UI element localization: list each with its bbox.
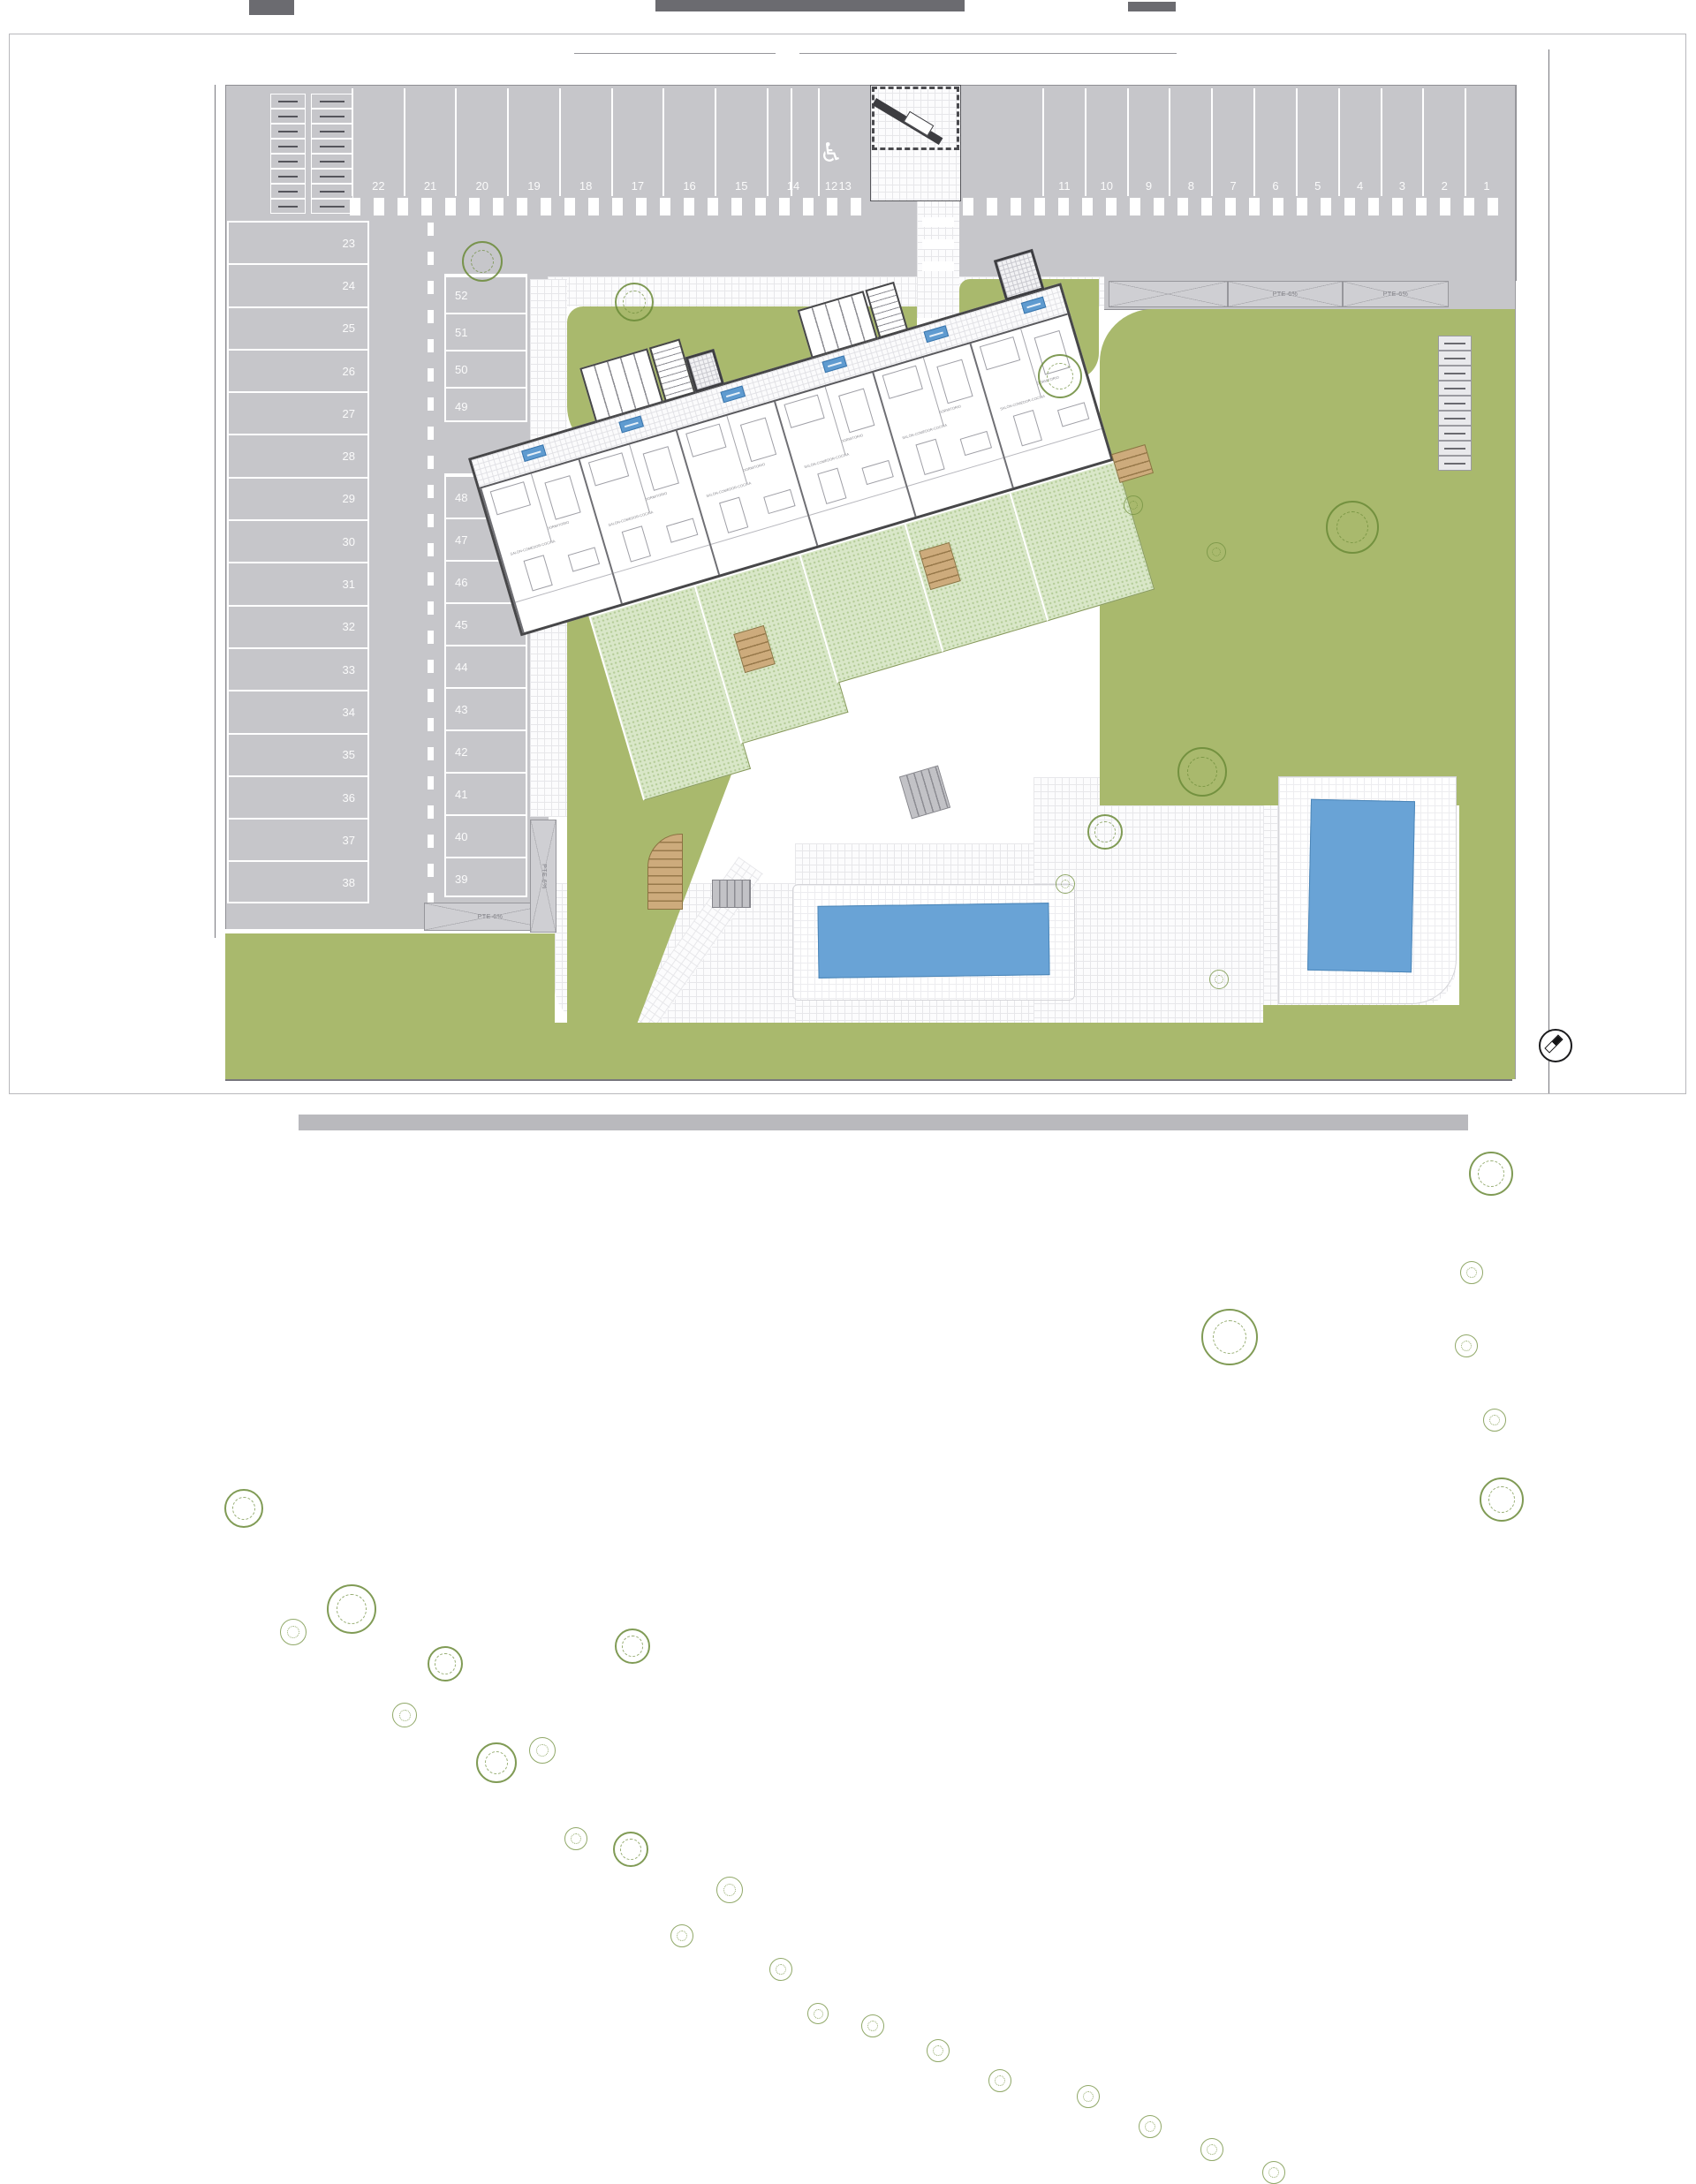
green-band-bottom: [555, 1023, 1263, 1079]
parking-space: 7: [1211, 88, 1253, 196]
parking-space-handicap: ♿ 12: [791, 88, 870, 196]
bike-rack-stalls: [311, 94, 353, 214]
shrub: [392, 1703, 417, 1727]
parking-column-left: 23242526272829303132333435363738: [227, 221, 369, 903]
parking-space: 4: [1338, 88, 1381, 196]
parking-space: 20: [455, 88, 507, 196]
parking-space: 19: [507, 88, 559, 196]
shrub: [670, 1924, 693, 1947]
parking-space: 6: [1253, 88, 1296, 196]
room-label-bedroom: DORMITORIO: [742, 462, 765, 472]
ramp-slope-label: PTE 6%: [1273, 291, 1298, 298]
bike-stall: [1438, 411, 1472, 426]
tree: [428, 1646, 463, 1681]
parking-space: 26: [229, 349, 367, 391]
shrub: [1483, 1409, 1506, 1432]
garage-ramp: PTE 6%: [1228, 281, 1343, 307]
green-band-bottom-right: [1263, 1005, 1459, 1079]
tree: [462, 241, 503, 282]
shrub: [807, 2003, 829, 2024]
dining-table: [915, 439, 944, 475]
bike-stall: [1438, 396, 1472, 411]
bike-stall: [311, 109, 353, 124]
site-plan-page: 22212019181716151413 ♿ 12 1110987654321 …: [0, 0, 1696, 1130]
tree: [615, 283, 654, 321]
parking-space: 38: [229, 860, 367, 903]
shrub: [769, 1958, 792, 1981]
scan-artifact-bar: [299, 1115, 1468, 1130]
bike-rack-stalls: [270, 94, 306, 214]
unit-number-badge: [1021, 297, 1047, 314]
parking-space: 51: [446, 313, 526, 350]
parking-space: 10: [1085, 88, 1127, 196]
parking-space: 28: [229, 434, 367, 476]
dining-table: [817, 468, 846, 504]
tree: [1038, 354, 1082, 398]
parking-space: 5: [1296, 88, 1338, 196]
bike-stall: [311, 139, 353, 154]
site-boundary-bottom: [225, 1079, 1512, 1081]
bike-stall: [1438, 381, 1472, 396]
tree: [615, 1629, 650, 1664]
ramp-slope-label: PTE 6%: [541, 864, 547, 889]
shrub: [280, 1619, 307, 1645]
bike-stall: [1438, 441, 1472, 456]
tree: [224, 1489, 263, 1528]
shrub: [1455, 1334, 1478, 1357]
bike-stall: [1438, 426, 1472, 441]
shrub: [1077, 2085, 1100, 2108]
compass-needle: [1544, 1034, 1563, 1053]
parking-space: 9: [1127, 88, 1170, 196]
bike-stall: [311, 94, 353, 109]
tree: [1201, 1309, 1258, 1365]
parking-space: 31: [229, 562, 367, 604]
bathroom: [685, 423, 726, 457]
sofa: [1057, 402, 1089, 427]
sofa: [666, 518, 698, 543]
parking-space: 8: [1169, 88, 1211, 196]
shrub: [1124, 495, 1143, 515]
bed: [740, 417, 776, 462]
tree: [327, 1584, 376, 1634]
dining-table: [719, 496, 748, 533]
north-arrow-compass: [1539, 1029, 1572, 1062]
parking-space: 34: [229, 690, 367, 732]
site-boundary-right: [1548, 49, 1549, 1093]
parking-space: 16: [662, 88, 715, 196]
swimming-pool-second: [1307, 799, 1415, 972]
unit-number-badge: [821, 355, 847, 373]
parking-row-top-right: 1110987654321: [1042, 88, 1507, 196]
green-band-bottom-left: [225, 933, 555, 1079]
parking-space: 24: [229, 263, 367, 306]
dining-table: [524, 555, 553, 591]
parking-space: 39: [446, 857, 526, 899]
unit-number-badge: [618, 416, 644, 434]
parking-space: 3: [1381, 88, 1423, 196]
bike-stall: [1438, 351, 1472, 366]
parking-space: 49: [446, 387, 526, 424]
shrub: [861, 2014, 884, 2037]
tree: [1326, 501, 1379, 554]
crosswalk-horizontal: [963, 198, 1507, 215]
pedestrian-ramp-vertical: PTE 6%: [530, 820, 556, 933]
site-boundary-right-inner: [1515, 85, 1516, 1079]
shrub: [927, 2039, 950, 2062]
sofa: [861, 460, 893, 485]
ramp-slope-label: PTE 6%: [478, 914, 503, 920]
bike-stall: [1438, 336, 1472, 351]
crosswalk-vertical: [922, 217, 954, 279]
bike-stall: [1438, 366, 1472, 381]
room-label-living: SALÓN-COMEDOR-COCINA: [608, 510, 654, 527]
parking-space: 18: [559, 88, 611, 196]
tree: [476, 1742, 517, 1783]
parking-space: 44: [446, 645, 526, 687]
unit-number-badge: [924, 325, 950, 343]
bike-stall: [270, 154, 306, 169]
shrub: [1207, 542, 1226, 562]
parking-space: 36: [229, 775, 367, 818]
bike-stall: [311, 169, 353, 184]
swimming-pool-main: [817, 903, 1049, 979]
shrub: [1262, 2161, 1285, 2184]
bike-stall: [311, 124, 353, 139]
room-label-living: SALÓN-COMEDOR-COCINA: [902, 423, 948, 441]
scan-artifact-bar: [249, 0, 294, 15]
parking-space: 15: [715, 88, 767, 196]
bed: [838, 389, 874, 434]
shrub: [529, 1737, 556, 1764]
parking-space: 17: [611, 88, 663, 196]
parking-space: 21: [404, 88, 456, 196]
plaza-steps: [712, 880, 751, 908]
bike-stall: [270, 169, 306, 184]
parking-space: 43: [446, 687, 526, 729]
bike-stall: [270, 199, 306, 214]
lane-divider-dashed: [428, 223, 434, 903]
shrub: [1056, 874, 1075, 894]
plan-top-edge-line: [574, 53, 776, 54]
bed: [544, 475, 580, 520]
parking-space: 40: [446, 814, 526, 857]
bathroom: [882, 366, 922, 399]
unit-number-badge: [521, 444, 547, 462]
shrub: [988, 2069, 1011, 2092]
parking-space-number: 12: [825, 179, 837, 193]
parking-space: 42: [446, 729, 526, 772]
parking-space: 1: [1465, 88, 1507, 196]
room-label-bedroom: DORMITORIO: [644, 491, 667, 502]
parking-space: 25: [229, 306, 367, 349]
bed: [936, 359, 973, 404]
shrub: [716, 1877, 743, 1903]
bike-stall: [270, 139, 306, 154]
shrub: [1200, 2138, 1223, 2161]
parking-space: 22: [352, 88, 404, 196]
scan-artifact-bar: [1128, 2, 1176, 11]
site-boundary-left: [215, 85, 216, 938]
bathroom: [980, 336, 1020, 370]
bike-stall: [311, 199, 353, 214]
parking-space: 35: [229, 733, 367, 775]
tree: [1087, 814, 1123, 850]
entrance-structure: [870, 85, 961, 201]
parking-space: 41: [446, 772, 526, 814]
bathroom: [490, 481, 531, 515]
bike-stall: [270, 94, 306, 109]
parking-column-middle-upper: 52515049: [444, 274, 527, 422]
parking-space: 29: [229, 477, 367, 519]
room-label-bedroom: DORMITORIO: [547, 520, 570, 531]
parking-space: 27: [229, 391, 367, 434]
room-label-living: SALÓN-COMEDOR-COCINA: [706, 480, 752, 498]
shrub: [1209, 970, 1229, 989]
green-column-right: [1459, 795, 1515, 1079]
tree: [613, 1832, 648, 1867]
crosswalk-horizontal: [350, 198, 870, 215]
room-label-bedroom: DORMITORIO: [938, 404, 961, 414]
parking-space: 11: [1042, 88, 1085, 196]
bike-rack-stalls-right: [1438, 336, 1472, 471]
tree: [1480, 1477, 1524, 1522]
sofa: [959, 431, 991, 456]
bike-stall: [1438, 456, 1472, 471]
tree: [1469, 1152, 1513, 1196]
tree: [1177, 747, 1227, 797]
bike-stall: [270, 184, 306, 199]
room-label-living: SALÓN-COMEDOR-COCINA: [1000, 394, 1046, 412]
dining-table: [621, 525, 650, 562]
handicap-icon: ♿: [820, 140, 844, 167]
parking-space: 2: [1422, 88, 1465, 196]
shrub: [564, 1827, 587, 1850]
parking-space: 33: [229, 647, 367, 690]
room-label-bedroom: DORMITORIO: [840, 433, 863, 443]
scan-artifact-bar: [655, 0, 965, 11]
garage-ramp: [1109, 281, 1228, 307]
shrub: [1460, 1261, 1483, 1284]
bike-stall: [311, 154, 353, 169]
garage-ramp: PTE 6%: [1343, 281, 1449, 307]
shrub: [1139, 2115, 1162, 2138]
unit-number-badge: [720, 385, 746, 403]
bathroom: [588, 452, 629, 486]
bike-stall: [311, 184, 353, 199]
parking-space: 32: [229, 605, 367, 647]
room-label-living: SALÓN-COMEDOR-COCINA: [804, 451, 850, 469]
dining-table: [1013, 410, 1042, 446]
sofa: [764, 489, 796, 514]
plan-top-edge-line: [799, 53, 1177, 54]
bike-stall: [270, 109, 306, 124]
parking-space: 30: [229, 519, 367, 562]
ramp-slope-label: PTE 6%: [1383, 291, 1409, 298]
parking-space: 37: [229, 818, 367, 860]
bike-stall: [270, 124, 306, 139]
bed: [642, 446, 678, 491]
sofa: [568, 547, 600, 571]
parking-space: 23: [229, 221, 367, 263]
bathroom: [784, 395, 824, 428]
room-label-living: SALÓN-COMEDOR-COCINA: [510, 539, 556, 556]
parking-space: 50: [446, 350, 526, 387]
